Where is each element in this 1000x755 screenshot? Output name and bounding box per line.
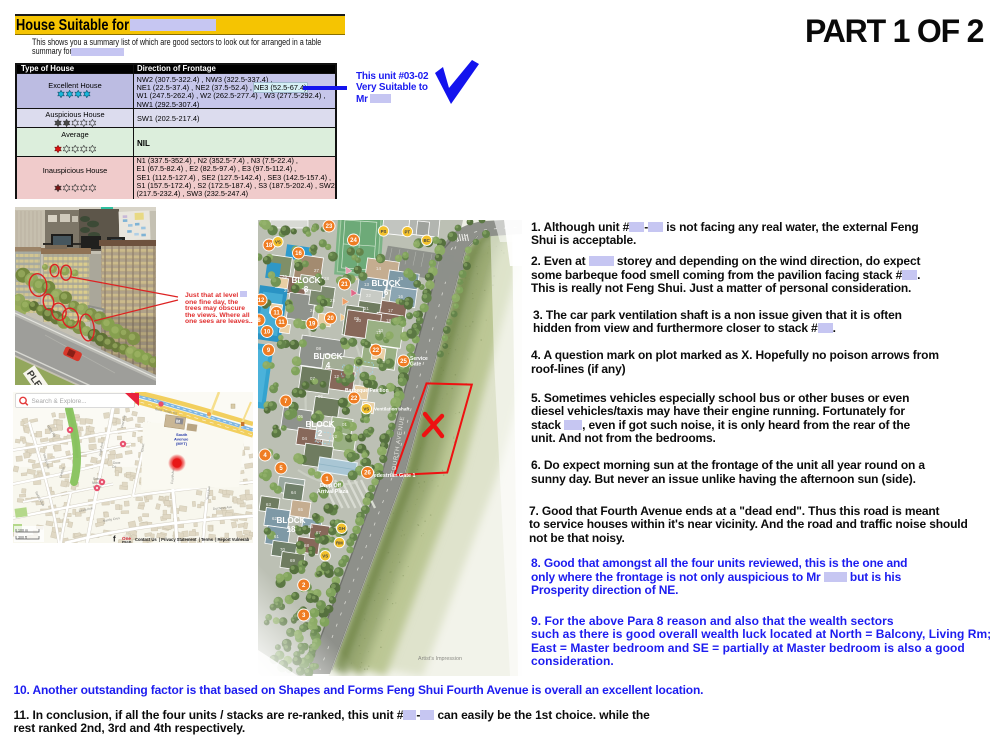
svg-text:25: 25 — [284, 288, 289, 293]
svg-text:11: 11 — [273, 311, 280, 317]
svg-text:f: f — [113, 535, 116, 544]
svg-text:(MYT): (MYT) — [176, 441, 188, 446]
svg-text:67: 67 — [316, 530, 321, 535]
svg-text:03: 03 — [316, 438, 321, 443]
svg-text:14: 14 — [376, 266, 381, 271]
svg-text:PS: PS — [381, 229, 387, 234]
svg-text:20: 20 — [327, 316, 334, 322]
svg-text:22: 22 — [372, 348, 379, 354]
svg-text:09: 09 — [354, 316, 359, 321]
svg-text:18: 18 — [386, 318, 391, 323]
svg-text:70: 70 — [280, 547, 285, 552]
svg-text:10: 10 — [264, 330, 271, 336]
svg-text:Ventilation shaft: Ventilation shaft — [374, 407, 410, 412]
svg-text:62: 62 — [272, 516, 277, 521]
svg-text:68: 68 — [304, 543, 309, 548]
svg-text:07: 07 — [310, 376, 315, 381]
svg-text:61: 61 — [274, 534, 279, 539]
svg-text:BLOCK: BLOCK — [313, 352, 342, 361]
svg-text:26: 26 — [282, 274, 287, 279]
svg-text:Contact Us | Privacy Statemen: Contact Us | Privacy Statement | Terms |… — [135, 537, 250, 542]
svg-text:24: 24 — [350, 238, 357, 244]
svg-text:65: 65 — [298, 507, 303, 512]
svg-text:11: 11 — [278, 320, 285, 326]
svg-text:map: map — [122, 540, 132, 544]
svg-text:BLOCK: BLOCK — [305, 420, 334, 429]
svg-text:18: 18 — [286, 525, 296, 534]
svg-text:8: 8 — [304, 285, 309, 294]
svg-text:BLOCK: BLOCK — [276, 516, 305, 525]
svg-text:64: 64 — [291, 490, 296, 495]
svg-text:08: 08 — [316, 346, 321, 351]
svg-text:GH: GH — [338, 526, 345, 531]
svg-text:Crt: Crt — [112, 465, 116, 469]
svg-text:04: 04 — [302, 436, 307, 441]
svg-text:63: 63 — [266, 502, 271, 507]
svg-text:Search & Explore...: Search & Explore... — [32, 398, 87, 405]
svg-text:13: 13 — [364, 282, 369, 287]
svg-text:21: 21 — [341, 282, 348, 288]
svg-text:25: 25 — [400, 359, 407, 365]
svg-text:16: 16 — [398, 294, 403, 299]
svg-text:15: 15 — [398, 276, 403, 281]
svg-text:Arrival Plaza: Arrival Plaza — [317, 489, 348, 495]
svg-text:100 m: 100 m — [18, 529, 28, 533]
svg-text:6: 6 — [384, 288, 389, 297]
svg-text:02: 02 — [332, 434, 337, 439]
svg-text:Gate: Gate — [410, 362, 421, 368]
svg-text:18: 18 — [266, 243, 273, 249]
svg-text:BLOCK: BLOCK — [371, 279, 400, 288]
svg-text:12: 12 — [258, 298, 265, 304]
svg-text:06: 06 — [318, 394, 323, 399]
svg-text:RM: RM — [336, 540, 343, 545]
svg-text:Artist’s Impression: Artist’s Impression — [418, 656, 462, 662]
svg-text:21: 21 — [364, 306, 369, 311]
svg-text:VS: VS — [275, 240, 281, 245]
svg-text:VS: VS — [363, 407, 369, 412]
svg-text:BC: BC — [424, 238, 431, 243]
svg-text:10: 10 — [378, 328, 383, 333]
svg-text:27: 27 — [314, 268, 319, 273]
svg-text:23: 23 — [330, 298, 335, 303]
svg-text:12: 12 — [334, 374, 339, 379]
svg-text:BLOCK: BLOCK — [291, 276, 320, 285]
svg-text:23: 23 — [326, 224, 333, 230]
svg-text:PT: PT — [404, 229, 410, 234]
svg-text:VS: VS — [322, 554, 328, 559]
svg-text:4: 4 — [326, 361, 331, 370]
svg-text:24: 24 — [310, 308, 315, 313]
svg-text:17: 17 — [388, 308, 393, 313]
svg-text:05: 05 — [298, 414, 303, 419]
svg-text:22: 22 — [366, 293, 371, 298]
svg-text:16: 16 — [295, 251, 302, 257]
svg-text:28: 28 — [324, 276, 329, 281]
svg-text:22: 22 — [351, 396, 358, 402]
svg-text:19: 19 — [309, 322, 316, 328]
svg-text:66: 66 — [308, 524, 313, 529]
svg-text:01: 01 — [342, 422, 347, 427]
svg-text:26: 26 — [364, 471, 371, 477]
svg-text:2: 2 — [318, 429, 323, 438]
svg-text:300 ft: 300 ft — [18, 536, 27, 540]
svg-text:69: 69 — [290, 558, 295, 563]
